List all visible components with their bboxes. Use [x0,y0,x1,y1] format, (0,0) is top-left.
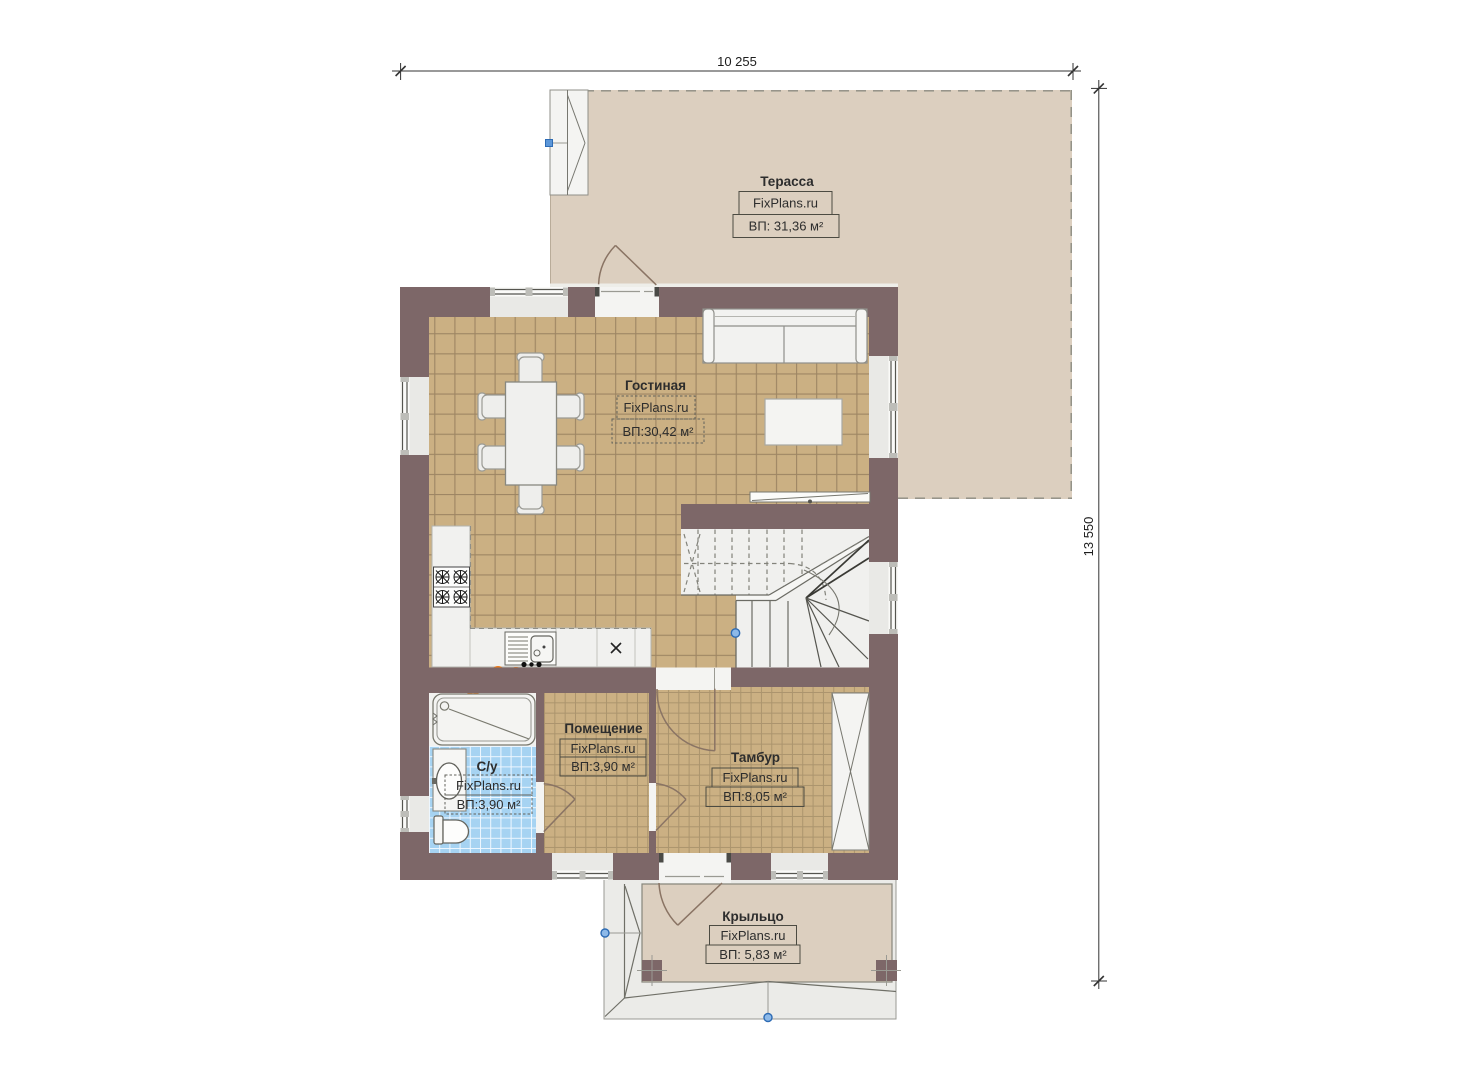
svg-text:ВП:3,90 м²: ВП:3,90 м² [457,797,521,812]
svg-text:Крыльцо: Крыльцо [722,909,783,924]
svg-text:FixPlans.ru: FixPlans.ru [456,778,521,793]
svg-text:ВП:3,90 м²: ВП:3,90 м² [571,759,635,774]
svg-text:ВП: 31,36 м²: ВП: 31,36 м² [749,219,824,234]
svg-text:10 255: 10 255 [717,54,757,69]
svg-text:Гостиная: Гостиная [625,378,686,393]
svg-text:13 550: 13 550 [1081,517,1096,557]
svg-text:ВП: 5,83 м²: ВП: 5,83 м² [719,947,787,962]
svg-text:FixPlans.ru: FixPlans.ru [570,741,635,756]
svg-text:Тамбур: Тамбур [731,750,780,765]
svg-text:С/у: С/у [476,759,498,774]
svg-text:FixPlans.ru: FixPlans.ru [623,400,688,415]
svg-text:FixPlans.ru: FixPlans.ru [720,928,785,943]
svg-text:ВП:8,05 м²: ВП:8,05 м² [723,789,787,804]
svg-text:Терасса: Терасса [760,174,814,189]
svg-text:Помещение: Помещение [564,721,643,736]
svg-text:FixPlans.ru: FixPlans.ru [753,196,818,211]
svg-text:FixPlans.ru: FixPlans.ru [722,770,787,785]
svg-text:ВП:30,42 м²: ВП:30,42 м² [622,424,694,439]
